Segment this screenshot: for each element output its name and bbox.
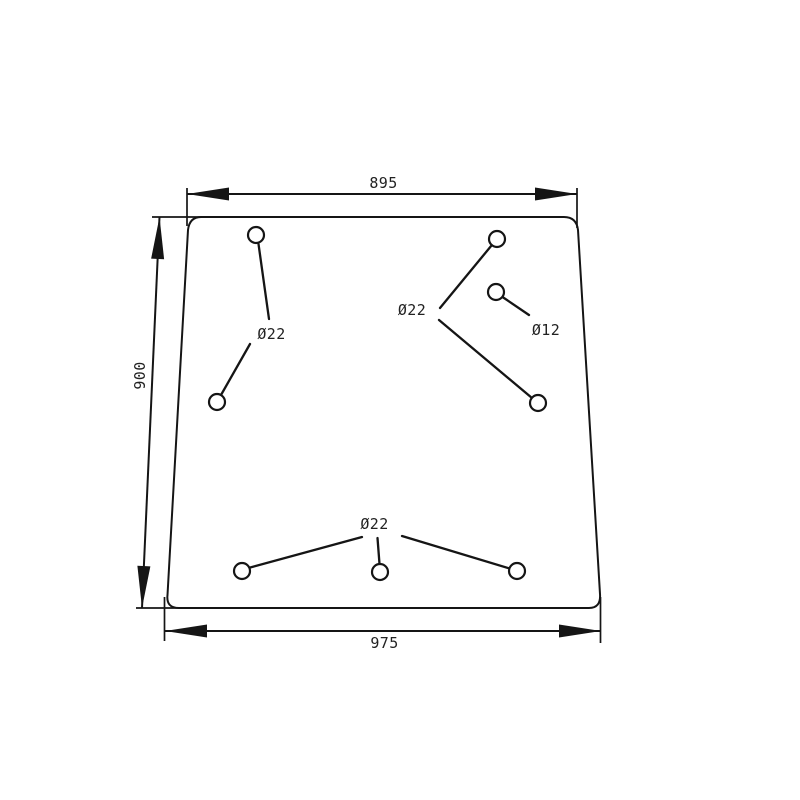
hole-diameter-label: Ø22 [257,325,285,343]
dimension-left-height: 900 [131,217,202,608]
leader-line [247,537,363,569]
mounting-hole [530,395,546,411]
mounting-hole [209,394,225,410]
drawing-canvas: 895900975Ø22Ø22Ø12Ø22 [0,0,800,800]
leader-line [440,246,492,309]
mounting-hole [489,231,505,247]
dimension-arrowhead [137,566,150,608]
hole-diameter-label: Ø12 [532,321,560,339]
dimension-arrowhead [187,188,229,201]
dimension-bottom-width: 975 [165,597,602,652]
technical-drawing: 895900975Ø22Ø22Ø12Ø22 [0,0,800,800]
mounting-hole [488,284,504,300]
dimension-label-bottom-width: 975 [370,634,398,652]
mounting-hole [234,563,250,579]
glass-panel-outline [167,217,600,608]
leader-line [378,538,380,564]
leader-line [402,536,510,569]
hole-diameter-label: Ø22 [398,301,426,319]
mounting-hole [248,227,264,243]
leader-line [439,320,532,398]
dimension-line [142,217,160,608]
dimension-arrowhead [165,625,207,638]
leader-line [221,344,250,395]
leader-line [259,244,270,319]
dimension-arrowhead [535,188,577,201]
dimension-label-left-height: 900 [131,361,149,389]
dimension-top-width: 895 [187,174,577,228]
leader-line [503,297,530,315]
mounting-hole [372,564,388,580]
dimension-label-top-width: 895 [369,174,397,192]
mounting-hole [509,563,525,579]
hole-diameter-label: Ø22 [360,515,388,533]
dimension-arrowhead [151,217,164,259]
dimension-arrowhead [559,625,601,638]
